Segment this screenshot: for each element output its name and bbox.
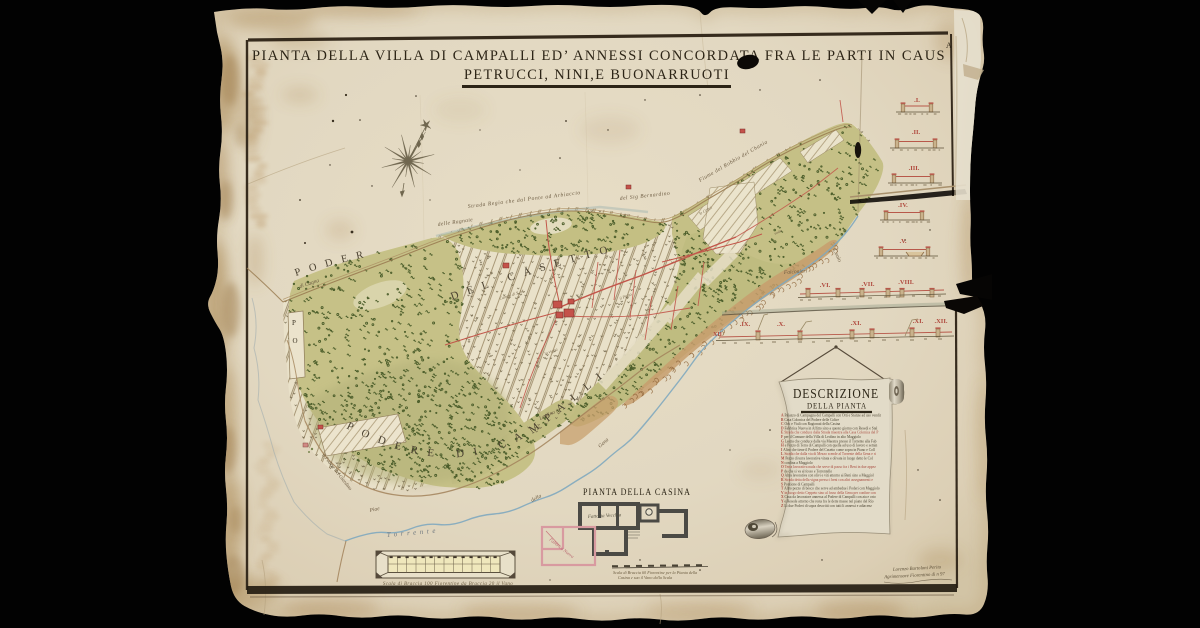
svg-text:Z Li due Poderi di sopra descr: Z Li due Poderi di sopra descritti con t…	[781, 504, 872, 508]
svg-text:Casina e suo il Vano della Sca: Casina e suo il Vano della Scala	[618, 575, 672, 580]
svg-text:.IX.: .IX.	[740, 321, 751, 328]
svg-text:.VIII.: .VIII.	[898, 279, 914, 286]
svg-text:PIANTA DELLA CASINA: PIANTA DELLA CASINA	[583, 487, 691, 497]
svg-text:A: A	[946, 41, 952, 50]
svg-text:.V.: .V.	[899, 238, 906, 245]
svg-text:O: O	[292, 337, 297, 345]
svg-text:.II.: .II.	[912, 129, 921, 136]
svg-text:PIANTA DELLA VILLA DI CAMPALLI: PIANTA DELLA VILLA DI CAMPALLI ED’ ANNES…	[252, 48, 946, 64]
svg-text:.XI.: .XI.	[851, 320, 862, 327]
svg-text:.XII.: .XII.	[934, 318, 947, 325]
svg-text:.VI.: .VI.	[820, 282, 831, 289]
svg-text:.IV.: .IV.	[898, 202, 908, 209]
svg-text:Scala di Braccia 100 Fiorentin: Scala di Braccia 100 Fiorentine da Bracc…	[383, 582, 513, 587]
svg-text:.XI.: .XI.	[913, 318, 924, 325]
svg-text:.X.: .X.	[777, 321, 785, 328]
svg-text:.III.: .III.	[909, 165, 920, 172]
svg-text:DELLA PIANTA: DELLA PIANTA	[807, 401, 867, 411]
svg-text:.I.: .I.	[914, 97, 920, 104]
svg-text:P: P	[292, 319, 296, 327]
svg-text:PETRUCCI, NINI,E BUONARRUOTI: PETRUCCI, NINI,E BUONARRUOTI	[464, 67, 730, 83]
svg-text:DESCRIZIONE: DESCRIZIONE	[793, 386, 879, 401]
svg-text:.VII.: .VII.	[861, 281, 874, 288]
